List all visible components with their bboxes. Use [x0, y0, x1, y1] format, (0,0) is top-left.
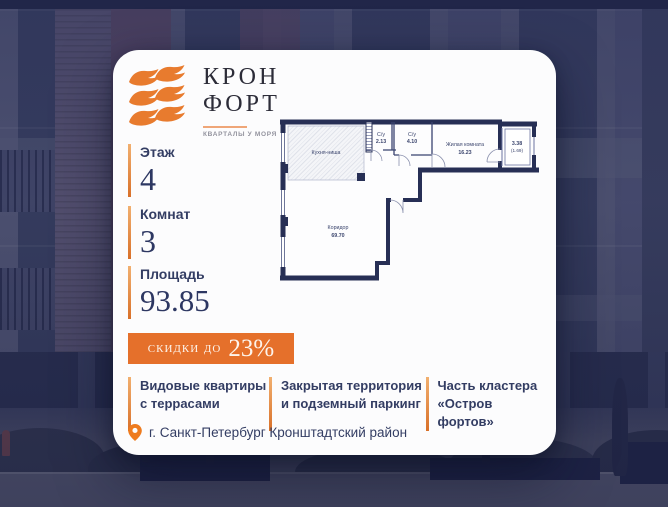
plan-room-area-wc2: 4.10 [407, 139, 417, 145]
plan-hatched-wall [366, 122, 372, 152]
stat-rooms-value: 3 [140, 223, 190, 259]
stat-area-label: Площадь [140, 266, 210, 283]
promo-card: КРОН ФОРТ КВАРТАЛЫ У МОРЯ Этаж 4 Комнат … [113, 50, 556, 455]
feature-line: «Остров фортов» [438, 395, 544, 431]
feature-cluster: Часть кластера «Остров фортов» [426, 377, 544, 431]
discount-prefix: скидки до [148, 340, 222, 357]
plan-column [357, 173, 365, 181]
logo-divider [203, 126, 247, 128]
feature-line: Видовые квартиры [140, 377, 269, 395]
logo-title-line2: ФОРТ [203, 91, 303, 118]
waves-logo-icon [128, 65, 186, 129]
plan-room-area-living: 16.23 [458, 150, 471, 156]
plan-room-label-corridor: Коридор [328, 225, 349, 231]
floor-plan: Кухня-ниша С/у 2.13 С/у 4.10 Жилая комна… [278, 116, 542, 286]
feature-line: и подземный паркинг [281, 395, 426, 413]
feature-closed-territory: Закрытая территория и подземный паркинг [269, 377, 426, 431]
location-text: г. Санкт-Петербург Кронштадтский район [149, 425, 407, 440]
discount-badge: скидки до 23% [128, 333, 294, 364]
stat-floor-value: 4 [140, 161, 175, 197]
plan-room-label-living: Жилая комната [446, 142, 484, 148]
plan-room-area-balcony: 3.38 [512, 141, 522, 147]
plan-room-label-wc2: С/у [408, 132, 416, 138]
stat-rooms-label: Комнат [140, 206, 190, 223]
stat-rooms: Комнат 3 [128, 206, 190, 259]
feature-view-apartments: Видовые квартиры с террасами [128, 377, 269, 431]
plan-room-area-corridor: 69.70 [331, 233, 344, 239]
feature-line: Часть кластера [438, 377, 544, 395]
plan-room-area-wc1: 2.13 [376, 139, 386, 145]
plan-room-label-wc1: С/у [377, 132, 385, 138]
stat-floor: Этаж 4 [128, 144, 175, 197]
features-row: Видовые квартиры с террасами Закрытая те… [128, 377, 543, 431]
plan-room-area-balcony-reduced: (1.69) [511, 148, 523, 153]
feature-line: с террасами [140, 395, 269, 413]
discount-value: 23% [228, 336, 274, 361]
location-row: г. Санкт-Петербург Кронштадтский район [128, 424, 407, 441]
logo-title: КРОН ФОРТ [203, 64, 303, 118]
stat-area: Площадь 93.85 [128, 266, 210, 319]
feature-line: Закрытая территория [281, 377, 426, 395]
logo-title-line1: КРОН [203, 64, 303, 91]
map-pin-icon [128, 424, 142, 441]
stat-floor-label: Этаж [140, 144, 175, 161]
plan-room-label-kitchen: Кухня-ниша [311, 150, 340, 156]
stat-area-value: 93.85 [140, 283, 210, 319]
logo-subtitle: КВАРТАЛЫ У МОРЯ [203, 131, 277, 138]
plan-balcony-glazing [502, 128, 534, 166]
